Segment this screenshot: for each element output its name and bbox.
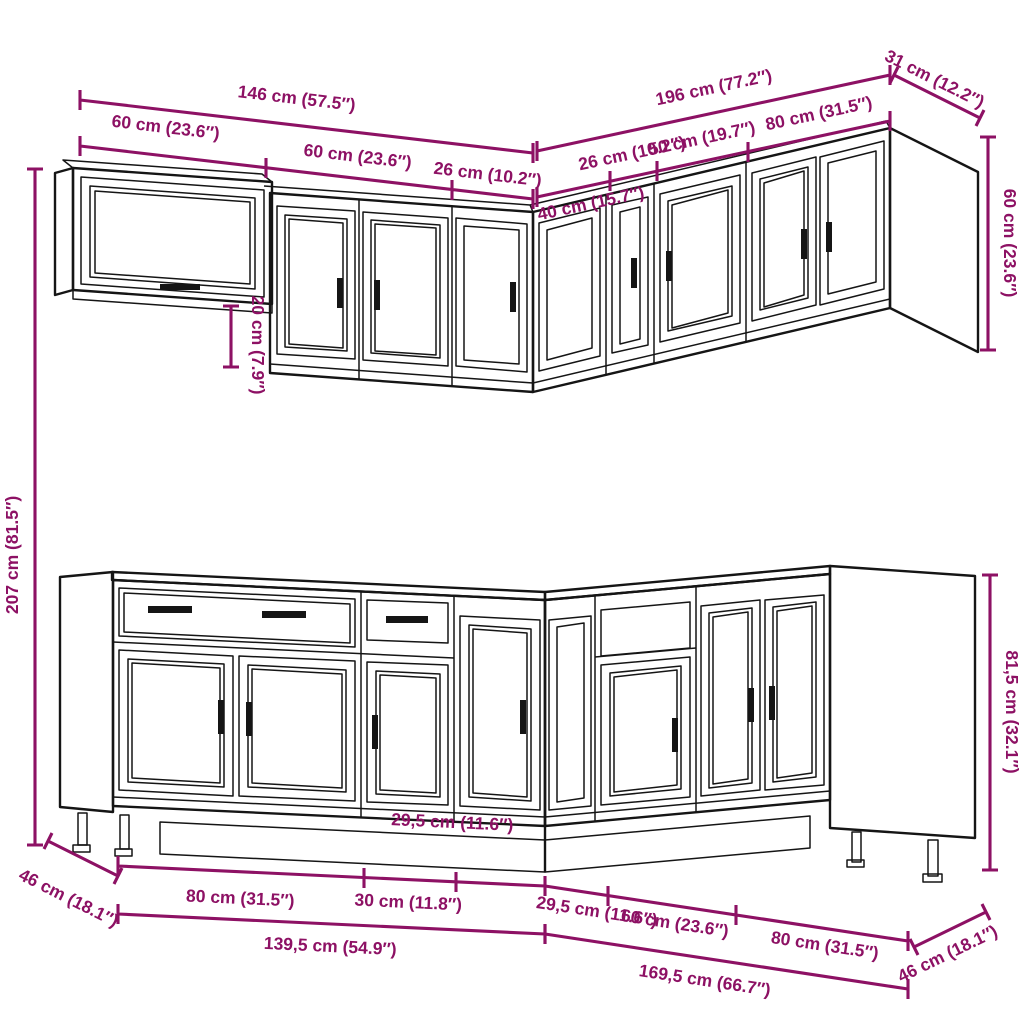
sink-door-frame: [610, 666, 681, 796]
wall-80-door1-panel: [764, 171, 804, 307]
dim-base-height: 81,5 cm (32.1″): [982, 575, 1022, 870]
base-leg-right-1: [852, 832, 861, 862]
wall-glass-cabinet: [55, 160, 272, 313]
diagram-canvas: 146 cm (57.5″) 60 cm (23.6″) 60 cm (23.6…: [0, 0, 1024, 1024]
base-leg-left-2: [120, 815, 129, 849]
wall-door-a-panel: [289, 219, 343, 348]
dim-label-wall-left-seg1: 60 cm (23.6″): [303, 140, 413, 173]
base-80r-door1-panel: [713, 612, 748, 784]
base-corner-right-door-frame: [557, 623, 584, 802]
dim-label-base-left-depth: 46 cm (18.1″): [16, 864, 122, 931]
wall-50-door-panel: [672, 190, 728, 328]
glass-door-frame: [90, 186, 255, 289]
dim-line: [982, 575, 998, 870]
dimensions-wall-run: 146 cm (57.5″) 60 cm (23.6″) 60 cm (23.6…: [2, 45, 1020, 845]
dim-wall-height: 60 cm (23.6″): [980, 137, 1020, 350]
sink-door-handle: [672, 718, 678, 752]
glass-cabinet-bottom-band: [73, 290, 272, 313]
base-door-a-outer: [119, 650, 233, 796]
dim-base-left-depth: 46 cm (18.1″): [16, 833, 122, 931]
wall-50-door-handle: [666, 251, 672, 281]
dim-line: [27, 169, 43, 845]
dim-label-base-height: 81,5 cm (32.1″): [1002, 650, 1022, 773]
base-corner-left-door-panel: [473, 629, 527, 797]
glass-door-pane: [95, 191, 250, 284]
dim-label-total-height: 207 cm (81.5″): [2, 496, 22, 614]
wall-door-c-outer: [456, 218, 527, 372]
drawer-30-handle: [386, 616, 428, 623]
base-run-right: [545, 566, 975, 882]
base-door-30-handle: [372, 715, 378, 749]
plinth-right: [545, 816, 810, 872]
dim-base-total-left: 139,5 cm (54.9″): [118, 904, 545, 959]
wall-door-b-handle: [374, 280, 380, 310]
base-right-side-panel: [830, 566, 975, 838]
dim-label-hang-offset: 20 cm (7.9″): [248, 296, 268, 395]
dim-total-height: 207 cm (81.5″): [2, 169, 43, 845]
base-left-side-panel: [60, 572, 113, 812]
glass-door-handle: [160, 284, 200, 290]
base-door-a-panel: [132, 663, 220, 783]
base-leg-left-2-foot: [115, 849, 132, 856]
base-door-a-frame: [128, 659, 224, 787]
sink-door-panel: [614, 670, 677, 792]
dim-line: [44, 833, 122, 884]
dim-base-right-segments: 29,5 cm (11.6″) 60 cm (23.6″) 80 cm (31.…: [535, 886, 908, 963]
wall-right-bottom-line: [533, 299, 890, 383]
base-leg-right-2: [928, 840, 938, 876]
dim-label-base-total-left: 139,5 cm (54.9″): [263, 933, 397, 959]
wall-right-side-panel: [890, 128, 978, 352]
base-80r-door2-handle: [769, 686, 775, 720]
drawer-80-handle-left: [148, 606, 192, 613]
wall-corner-door-outer: [539, 208, 600, 371]
dim-label-wall-total-left: 146 cm (57.5″): [237, 81, 357, 115]
base-door-30-frame: [376, 671, 440, 797]
sink-band-recess: [601, 602, 690, 656]
dim-label-base-left-seg1: 30 cm (11.8″): [354, 889, 462, 914]
wall-80-door1-handle: [801, 229, 807, 259]
base-leg-right-2-foot: [923, 874, 942, 882]
dim-label-base-corner-left: 29,5 cm (11.6″): [391, 809, 514, 835]
dim-label-wall-height: 60 cm (23.6″): [1000, 189, 1020, 298]
base-80r-door1-frame: [709, 608, 752, 788]
wall-26-door-handle: [631, 258, 637, 288]
wall-80-door1-frame: [760, 167, 808, 310]
base-80r-door2-panel: [777, 606, 812, 778]
dim-line: [980, 137, 996, 350]
base-door-b-handle: [246, 702, 252, 736]
wall-26-door-outer: [612, 197, 648, 353]
glass-cabinet-side-panel: [55, 168, 73, 295]
base-corner-left-door-handle: [520, 700, 526, 734]
base-leg-left-1: [78, 813, 87, 845]
dim-wall-right-depth: 31 cm (12.2″): [882, 45, 988, 126]
drawer-80-handle-right: [262, 611, 306, 618]
kitchen-cabinet-dimension-diagram: 146 cm (57.5″) 60 cm (23.6″) 60 cm (23.6…: [0, 0, 1024, 1024]
base-80r-door1-handle: [748, 688, 754, 722]
base-cabinets: [60, 566, 975, 882]
base-door-30-panel: [380, 675, 436, 793]
base-door-b-outer: [239, 656, 355, 801]
wall-80-door2-frame: [828, 151, 876, 294]
dim-line: [223, 306, 239, 367]
dim-label-wall-left-seg2: 26 cm (10.2″): [433, 158, 543, 191]
wall-door-b-panel: [375, 224, 436, 355]
wall-50-door-frame: [668, 186, 732, 331]
wall-door-a-handle: [337, 278, 343, 308]
base-door-b-frame: [248, 665, 346, 792]
base-leg-left-1-foot: [73, 845, 90, 852]
dim-label-base-left-seg0: 80 cm (31.5″): [186, 885, 295, 910]
dim-label-wall-right-depth: 31 cm (12.2″): [882, 45, 988, 112]
wall-door-b-frame: [371, 220, 440, 358]
wall-80-door2-handle: [826, 222, 832, 252]
base-door-b-panel: [252, 669, 342, 788]
wall-corner-door-frame: [547, 218, 592, 360]
drawer-80-inner: [124, 593, 350, 643]
base-corner-left-door-outer: [460, 616, 540, 810]
dim-label-base-right-seg2: 80 cm (31.5″): [770, 927, 880, 963]
dim-base-right-depth: 46 cm (18.1″): [894, 904, 1000, 986]
wall-left-bottom-line: [270, 364, 533, 383]
wall-door-c-handle: [510, 282, 516, 312]
base-80r-door2-frame: [773, 602, 816, 782]
wall-cabinets: [55, 121, 978, 392]
base-door-a-handle: [218, 700, 224, 734]
